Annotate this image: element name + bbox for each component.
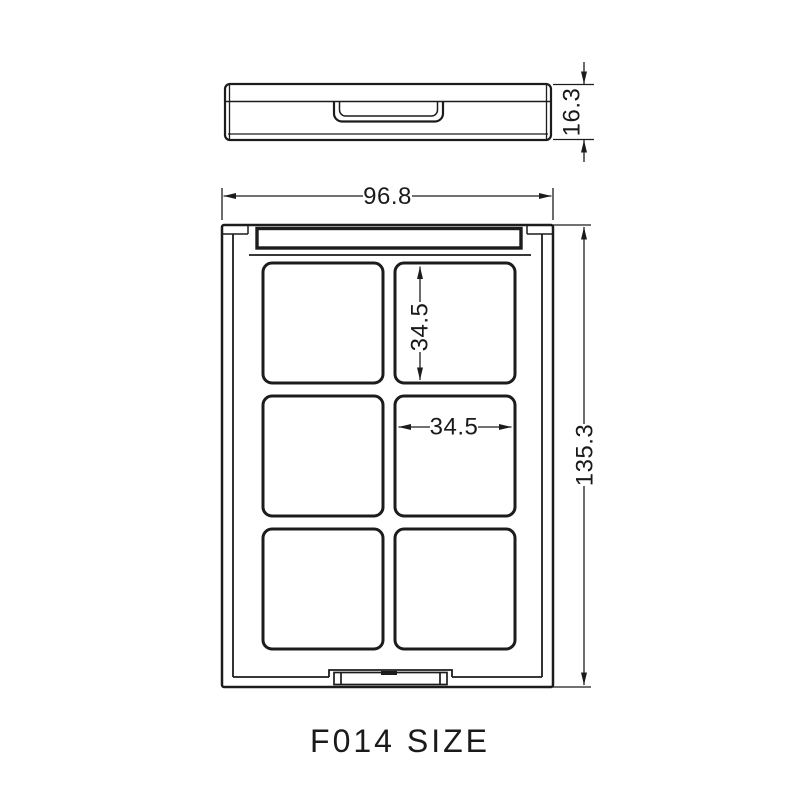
dim-pan-width: 34.5 [399, 414, 512, 441]
latch-catch-mark [381, 671, 397, 675]
drawing-title: F014 SIZE [310, 723, 490, 759]
technical-drawing-page: 16.3 96.8 [0, 0, 800, 800]
pan-row3-right [395, 529, 515, 649]
thumb-notch-inner [340, 102, 438, 117]
palette-outer-outline [222, 225, 553, 687]
dim-pan-height: 34.5 [406, 267, 433, 381]
dim-label-overall-height: 135.3 [571, 424, 598, 487]
pan-row1-left [263, 263, 383, 383]
front-view-open-palette [222, 225, 553, 687]
case-outline [225, 84, 551, 140]
pan-row2-left [263, 396, 383, 516]
side-view-closed-case [225, 84, 551, 140]
pan-row3-left [263, 529, 383, 649]
dim-label-pan-height: 34.5 [406, 303, 433, 352]
palette-dimension-drawing: 16.3 96.8 [0, 0, 800, 800]
dim-label-overall-width: 96.8 [363, 183, 412, 210]
thumb-notch-outer [334, 102, 443, 122]
dim-label-pan-width: 34.5 [430, 414, 479, 441]
hinge-bar [257, 229, 521, 249]
dim-case-thickness: 16.3 [553, 62, 594, 162]
dim-overall-height: 135.3 [553, 225, 598, 687]
dim-overall-width: 96.8 [222, 183, 553, 220]
dim-label-case-thickness: 16.3 [558, 88, 585, 137]
